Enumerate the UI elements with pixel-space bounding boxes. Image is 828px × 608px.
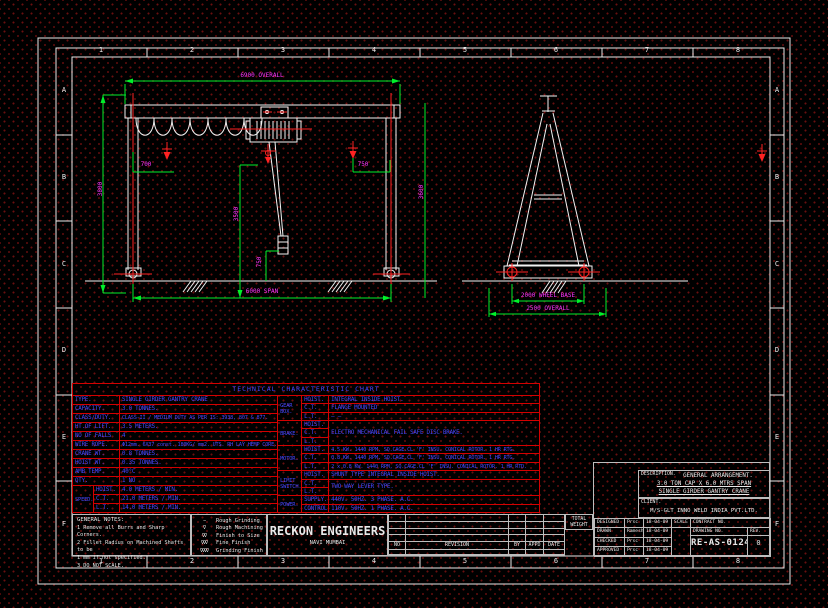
zone-label: C <box>58 260 70 268</box>
cad-drawing-sheet: 1 2 3 4 5 6 7 8 1 2 3 4 5 6 7 8 A B C D … <box>0 0 828 608</box>
finish-label: Rough Machining <box>216 525 263 532</box>
client-box: CLIENT. M/S-GLT INNO WELD INDIA PVT.LTD. <box>638 498 770 518</box>
row-label: CAPACITY. <box>73 405 120 414</box>
row-value: ELECTRO MECHANICAL FAIL SAFE DISC BRAKE. <box>329 421 539 446</box>
zone-label: 1 <box>91 46 111 54</box>
dim-front-span: 6000 SPAN <box>222 289 302 295</box>
row-value: SHUNT TYPE INTEGRAL INSIDE HOIST. <box>329 471 539 479</box>
row-value: 0.8 KW. 1440 RPM, SQ.CAGE.CL 'F' INSU. C… <box>329 454 539 462</box>
finish-symbol: ∼ <box>192 518 216 525</box>
row-value: 2 x 0.8 KW. 1440 RPM, SQ.CAGE.CL 'F' INS… <box>329 463 539 471</box>
sub-label: SUPPLY. <box>302 496 329 504</box>
finish-symbol: ∇ <box>192 525 216 532</box>
sub-label: HOIST. <box>302 446 329 454</box>
row-value: 21.0 METERS / MIN. <box>120 495 277 504</box>
zone-label: 8 <box>728 46 748 54</box>
drawing-number: RE-AS-0124 <box>691 536 748 556</box>
sub-label: L.T. <box>302 463 329 471</box>
company-city: NAVI MUMBAI <box>310 540 346 546</box>
title-block: DESCRIPTION. GENERAL ARRANGEMENT. 3.0 TO… <box>593 462 770 556</box>
notes-title: GENERAL NOTES: <box>77 517 190 525</box>
sub-label: L.T. <box>302 413 329 421</box>
dim-side-wheel-base: 2000 WHEEL BASE <box>508 293 588 299</box>
row-label: WIRE ROPE. <box>73 441 120 450</box>
description-line: SINGLE GIRDER GANTRY CRANE <box>639 489 769 495</box>
description-line: 3.0 TON CAP X 6.0 MTRS SPAN <box>639 481 769 487</box>
ground-hatch <box>328 281 352 292</box>
row-value: 4.5 KW. 1440 RPM, SQ.CAGE.CL 'F' INSU. C… <box>329 446 539 454</box>
note-item: 1 Remove all Burrs and Sharp Corners. <box>77 525 190 540</box>
zone-label: 3 <box>273 557 293 565</box>
power-group-label: POWER. <box>278 496 302 513</box>
zone-label: A <box>58 86 70 94</box>
row-value: 40°C <box>120 468 277 477</box>
zone-label: E <box>771 433 783 441</box>
finish-label: Rough Grinding <box>216 518 260 525</box>
zone-label: D <box>771 346 783 354</box>
finish-symbol: ∇∇ <box>192 533 216 540</box>
zone-label: 7 <box>637 46 657 54</box>
general-notes: GENERAL NOTES: 1 Remove all Burrs and Sh… <box>72 514 191 556</box>
revision-table: NO REVISION BY APPD DATE <box>388 514 565 556</box>
company-name: RECKON ENGINEERS <box>270 524 386 538</box>
finish-label: Grinding Finish <box>216 548 263 555</box>
role-name: Prsc <box>625 519 644 528</box>
role-name: Ramesh <box>625 528 644 537</box>
row-value: 0.8 TONNES. <box>120 450 277 459</box>
sub-label: L.T. <box>94 504 120 513</box>
row-value: 0.35 TONNES. <box>120 459 277 468</box>
sub-label: HOIST. <box>302 421 329 429</box>
role-label: APPROVED <box>595 547 625 556</box>
zone-label: 4 <box>364 46 384 54</box>
zone-label: F <box>58 520 70 528</box>
dim-front-height-mid: 3500 <box>234 199 240 229</box>
zone-label: 5 <box>455 557 475 565</box>
sub-label: L.T. <box>302 438 329 446</box>
row-value: INTEGRAL INSIDE HOIST. <box>329 396 539 404</box>
sub-label: C.T. <box>302 454 329 462</box>
row-value: TWO WAY LEVER TYPE. <box>329 480 539 497</box>
role-label: DESIGNED <box>595 519 625 528</box>
note-item: 2 Fillet Radius on Machined Shafts to be… <box>77 540 190 563</box>
row-value: SINGLE GIRDER GANTRY CRANE <box>120 396 277 405</box>
zone-label: B <box>58 173 70 181</box>
sub-label: C.T. <box>94 495 120 504</box>
zone-label: 2 <box>182 46 202 54</box>
side-view-geometry <box>462 96 688 293</box>
row-value: Φ12mm. 6X37 const. 180KG/ mm2. UTS. RH L… <box>120 441 277 450</box>
row-label: TYPE. <box>73 396 120 405</box>
zone-label: F <box>771 520 783 528</box>
sub-label: C.T. <box>302 404 329 412</box>
scale-label: SCALE <box>672 519 691 528</box>
row-value: 3.5 METERS. <box>120 423 277 432</box>
finish-label: Fine Finish <box>216 540 250 547</box>
row-label: CLASS/DUTY. <box>73 414 120 423</box>
description-line: GENERAL ARRANGEMENT. <box>669 473 767 479</box>
ground-hatch <box>183 281 207 292</box>
role-name: Prsc <box>625 538 644 547</box>
rev-header-revision: REVISION <box>406 542 509 550</box>
zone-label: 5 <box>455 46 475 54</box>
row-label: NO OF FALLS <box>73 432 120 441</box>
role-date: 18-04-09 <box>644 519 672 528</box>
row-label: AMB TEMP. <box>73 468 120 477</box>
role-date: 18-04-09 <box>644 547 672 556</box>
note-item: 3 DO NOT SCALE. <box>77 563 190 571</box>
rev-header-date: DATE <box>544 542 565 550</box>
company-block: RECKON ENGINEERS NAVI MUMBAI <box>267 514 388 556</box>
row-label: QTY. <box>73 477 120 486</box>
rev-header-no: NO <box>389 542 406 550</box>
row-value: 1 NO <box>120 477 277 486</box>
row-value: 3.0 TONNES. <box>120 405 277 414</box>
role-name: Prsc <box>625 547 644 556</box>
revision-number: 0 <box>748 536 769 556</box>
dim-front-height-left: 3800 <box>98 174 104 204</box>
finish-label: Finish to Size <box>216 533 260 540</box>
dim-front-overall: 6900 OVERALL <box>222 73 302 79</box>
drawing-no-label: DRAWING NO. <box>691 528 748 536</box>
dim-side-overall: 2500 OVERALL <box>508 306 588 312</box>
dimension-lines <box>103 81 606 317</box>
role-date: 18-04-09 <box>644 528 672 537</box>
row-label: HT.OF LIFT. <box>73 423 120 432</box>
client-label: CLIENT. <box>641 500 661 505</box>
contract-no-label: CONTRACT NO. <box>691 519 770 528</box>
row-value: 14.0 METERS / MIN. <box>120 504 277 513</box>
zone-label: E <box>58 433 70 441</box>
speed-group-label: SPEED. <box>73 486 94 513</box>
row-label: HOIST WT. <box>73 459 120 468</box>
role-label: CHECKED <box>595 538 625 547</box>
dim-front-height-right: 3600 <box>419 177 425 207</box>
hoist-rope <box>269 142 283 236</box>
zone-label: 3 <box>273 46 293 54</box>
row-value: FLANGE MOUNTED <box>329 404 539 412</box>
sub-label: HOIST. <box>94 486 120 495</box>
finish-symbol: ∇∇∇ <box>192 540 216 547</box>
role-label: DRAWN <box>595 528 625 537</box>
zone-label: 6 <box>546 46 566 54</box>
centerlines <box>114 93 767 288</box>
zone-label: 8 <box>728 557 748 565</box>
row-value: 440V. 50HZ. 3 PHASE. A.C. <box>329 496 539 504</box>
sub-label: CONTROL. <box>302 505 329 513</box>
sub-label: C.T. <box>302 429 329 437</box>
zone-label: 4 <box>364 557 384 565</box>
limit-switch-group-label: LIMIT SWITCH. <box>278 471 302 496</box>
zone-label: B <box>771 173 783 181</box>
sub-label: C.T. <box>302 480 329 488</box>
technical-characteristic-chart: TECHNICAL CHARACTERISTIC CHART TYPE.SING… <box>72 383 540 513</box>
sub-label: L.T. <box>302 488 329 496</box>
sub-label: HOIST. <box>302 471 329 479</box>
row-label: CRANE WT. <box>73 450 120 459</box>
chart-left-grid: TYPE.SINGLE GIRDER GANTRY CRANE CAPACITY… <box>73 396 278 513</box>
motor-group-label: MOTOR. <box>278 446 302 471</box>
rev-header-appd: APPD <box>526 542 544 550</box>
festoon-cable-loops <box>136 118 262 135</box>
scale-value-cell <box>672 528 691 556</box>
zone-label: A <box>771 86 783 94</box>
client-name: M/S-GLT INNO WELD INDIA PVT.LTD. <box>639 508 769 514</box>
row-value: 4 <box>120 432 277 441</box>
red-arrowheads <box>164 151 766 164</box>
finish-symbol: ∇∇∇∇ <box>192 548 216 555</box>
dim-front-hook: 750 <box>257 247 263 277</box>
total-weight-cell: TOTAL WEIGHT <box>565 514 593 530</box>
role-date: 18-04-09 <box>644 538 672 547</box>
hook-block <box>278 236 288 254</box>
row-value: CLASS-II / MEDIUM DUTY AS PER IS: 3938, … <box>120 414 277 423</box>
dim-front-offset-right: 750 <box>348 162 378 168</box>
rev-header-by: BY <box>509 542 526 550</box>
row-value: — — <box>329 413 539 421</box>
drawing-no-cell: DRAWING NO. REV. RE-AS-0124 0 <box>691 528 770 556</box>
zone-label: 6 <box>546 557 566 565</box>
brake-group-label: BRAKE. <box>278 421 302 446</box>
zone-label: 7 <box>637 557 657 565</box>
zone-label: C <box>771 260 783 268</box>
gearbox-group-label: GEAR BOX. <box>278 396 302 421</box>
zone-label: D <box>58 346 70 354</box>
sub-label: HOIST. <box>302 396 329 404</box>
chart-right-grid: GEAR BOX. HOIST. INTEGRAL INSIDE HOIST. … <box>278 396 539 513</box>
rev-label: REV. <box>748 528 769 536</box>
chart-title: TECHNICAL CHARACTERISTIC CHART <box>73 384 539 396</box>
description-box: DESCRIPTION. GENERAL ARRANGEMENT. 3.0 TO… <box>638 470 770 498</box>
row-value: 4.0 METERS / MIN. <box>120 486 277 495</box>
surface-finish-legend: ∼Rough Grinding ∇Rough Machining ∇∇Finis… <box>191 514 267 556</box>
row-value: 110V. 50HZ. 1 PHASE. A.C. <box>329 505 539 513</box>
dim-front-offset-left: 700 <box>131 162 161 168</box>
approval-grid: DESIGNED Prsc 18-04-09 SCALE CONTRACT NO… <box>594 518 771 557</box>
